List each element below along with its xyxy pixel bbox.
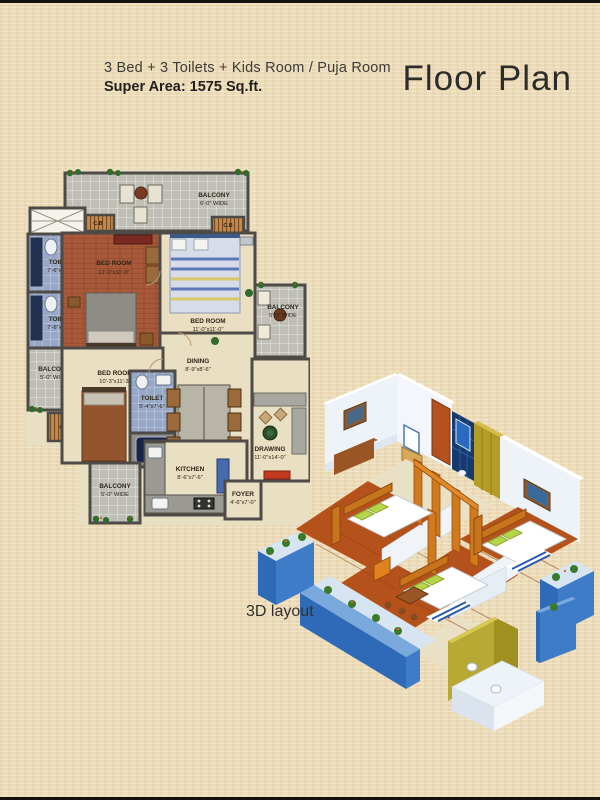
room-dims: 5'-0" WIDE bbox=[101, 492, 129, 498]
plan-description: 3 Bed + 3 Toilets + Kids Room / Puja Roo… bbox=[104, 60, 391, 76]
room-bedroom-2: BED ROOM 11'-0"x11'-0" bbox=[160, 233, 255, 333]
room-label: FOYER bbox=[232, 491, 254, 498]
3d-layout-caption: 3D layout bbox=[246, 603, 314, 621]
room-balcony-right: BALCONY 5'-0" WIDE bbox=[255, 282, 305, 357]
room-label: KITCHEN bbox=[176, 466, 205, 473]
room-label: BALCONY bbox=[198, 192, 230, 199]
room-label: DINING bbox=[187, 358, 209, 365]
page: { "header": { "line1": "3 Bed + 3 Toilet… bbox=[0, 0, 600, 800]
room-dims: 6'-0" WIDE bbox=[200, 201, 228, 207]
room-label: BED ROOM bbox=[97, 370, 132, 377]
cupboard-top-left: C.B bbox=[82, 215, 114, 231]
room-dims: 5'-0" WIDE bbox=[269, 313, 297, 319]
room-dims: 12'-0"x11'-0" bbox=[98, 270, 129, 276]
cupboard-label: C.B bbox=[93, 221, 102, 227]
room-label: BALCONY bbox=[99, 483, 131, 490]
cupboard-top-right: C.B bbox=[212, 217, 244, 233]
room-dims: 8'-9"x8'-6" bbox=[185, 367, 211, 373]
room-label: TOILET bbox=[141, 395, 164, 402]
room-dims: 5'-4"x7'-6" bbox=[139, 404, 165, 410]
room-label: BED ROOM bbox=[190, 318, 225, 325]
room-balcony-bottom: BALCONY 5'-0" WIDE bbox=[90, 463, 140, 523]
room-label: BED ROOM bbox=[96, 260, 131, 267]
room-dims: 4'-6"x7'-0" bbox=[230, 500, 256, 506]
cupboard-label: C.B bbox=[223, 223, 232, 229]
page-title: Floor Plan bbox=[402, 59, 572, 99]
room-label: BALCONY bbox=[267, 304, 299, 311]
room-dims: 8'-6"x7'-6" bbox=[177, 475, 203, 481]
super-area-text: Super Area: 1575 Sq.ft. bbox=[104, 79, 391, 95]
3d-layout-render bbox=[256, 359, 596, 769]
stair-box bbox=[30, 208, 85, 234]
room-dims: 10'-3"x11'-3" bbox=[99, 379, 130, 385]
header-block: 3 Bed + 3 Toilets + Kids Room / Puja Roo… bbox=[104, 60, 391, 95]
room-bedroom-1: BED ROOM 12'-0"x11'-0" bbox=[62, 233, 160, 348]
room-dims: 11'-0"x11'-0" bbox=[193, 327, 224, 333]
